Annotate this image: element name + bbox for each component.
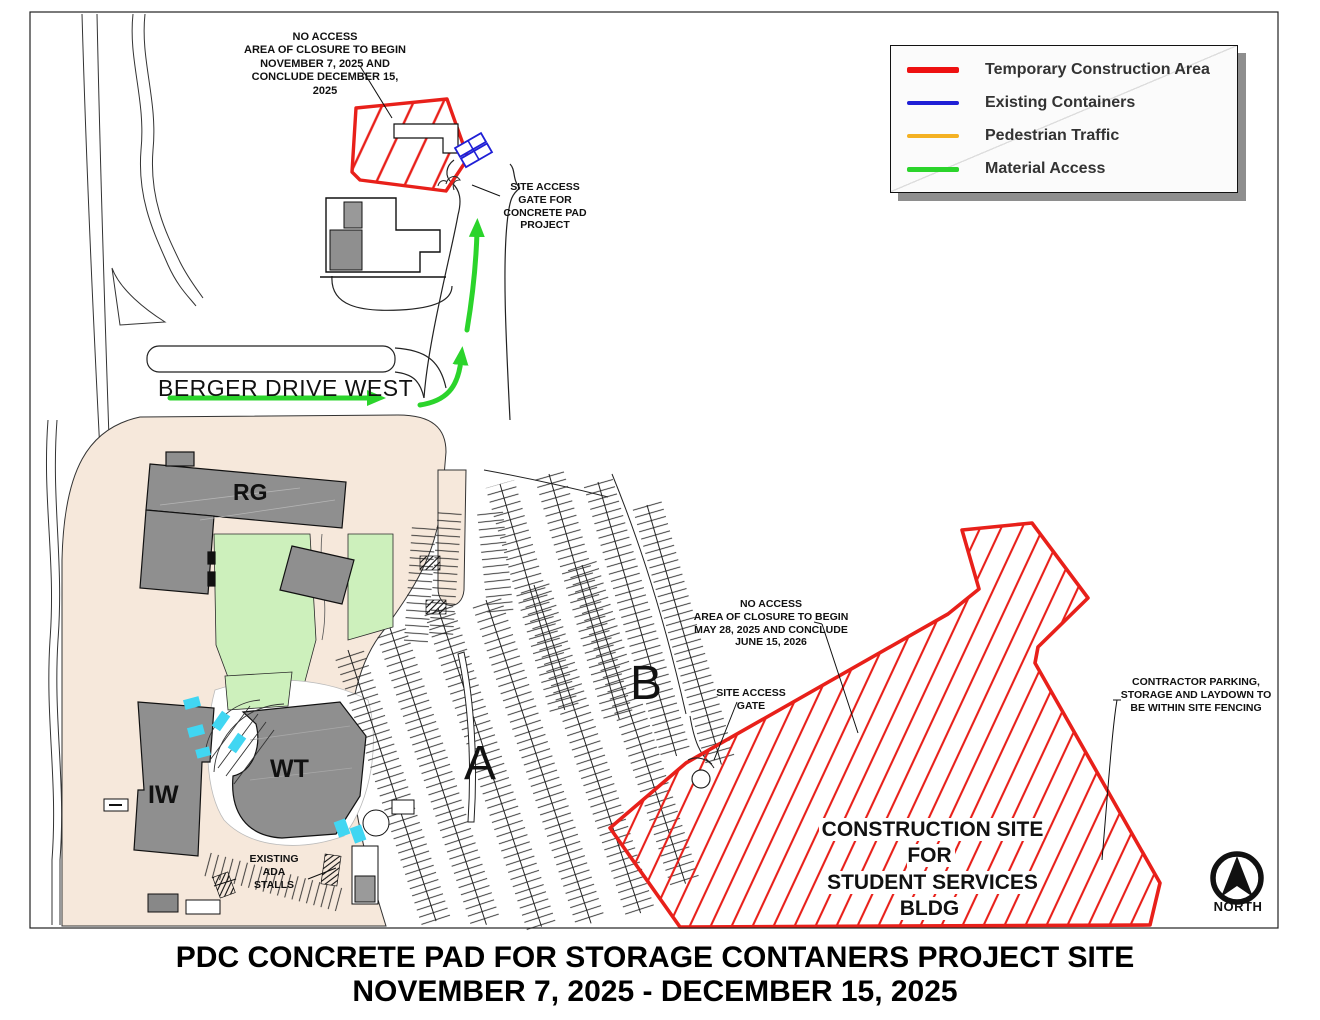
legend-label: Pedestrian Traffic [985, 127, 1119, 145]
street-label-berger-drive: BERGER DRIVE WEST [158, 375, 413, 402]
containers-swatch [907, 101, 959, 105]
north-arrow-icon [1213, 854, 1261, 902]
pedestrian-swatch [907, 134, 959, 138]
legend: Temporary Construction Area Existing Con… [890, 45, 1238, 193]
construction-site-line1: CONSTRUCTION SITE FOR [819, 818, 1044, 867]
berger-drive-road [147, 346, 395, 372]
drawing-title: PDC CONCRETE PAD FOR STORAGE CONTANERS P… [0, 941, 1310, 1008]
legend-label: Temporary Construction Area [985, 61, 1210, 79]
parking-lot-label-a: A [464, 736, 496, 791]
annotation-no-access-main: NO ACCESS AREA OF CLOSURE TO BEGIN MAY 2… [682, 598, 860, 649]
annotation-contractor: CONTRACTOR PARKING, STORAGE AND LAYDOWN … [1113, 676, 1279, 714]
building-label-iw: IW [148, 781, 179, 810]
building-label-wt: WT [270, 755, 309, 784]
legend-item-construction: Temporary Construction Area [907, 61, 1237, 79]
building-label-rg: RG [233, 479, 268, 506]
parking-lot-label-b: B [630, 656, 662, 711]
legend-item-pedestrian: Pedestrian Traffic [907, 127, 1237, 145]
construction-area-swatch [907, 67, 959, 73]
annotation-gate-top: SITE ACCESS GATE FOR CONCRETE PAD PROJEC… [498, 181, 592, 232]
title-line1: PDC CONCRETE PAD FOR STORAGE CONTANERS P… [0, 941, 1310, 975]
north-label: NORTH [1206, 899, 1270, 914]
annotation-ada-stalls: EXISTING ADA STALLS [238, 853, 310, 891]
legend-label: Existing Containers [985, 94, 1135, 112]
legend-item-containers: Existing Containers [907, 94, 1237, 112]
site-plan-page: Temporary Construction Area Existing Con… [0, 0, 1320, 1020]
legend-item-material: Material Access [907, 160, 1237, 178]
legend-label: Material Access [985, 160, 1105, 178]
material-swatch [907, 167, 959, 172]
building-north [320, 198, 446, 277]
title-line2: NOVEMBER 7, 2025 - DECEMBER 15, 2025 [0, 975, 1310, 1009]
annotation-no-access-top: NO ACCESS AREA OF CLOSURE TO BEGIN NOVEM… [205, 31, 445, 98]
annotation-gate-main: SITE ACCESS GATE [710, 687, 792, 713]
construction-site-line2: STUDENT SERVICES BLDG [824, 871, 1038, 920]
material-access-arrow-north [467, 232, 477, 330]
material-access-arrow-turn [420, 360, 461, 405]
construction-site-label: CONSTRUCTION SITE FOR STUDENT SERVICES B… [806, 817, 1056, 922]
